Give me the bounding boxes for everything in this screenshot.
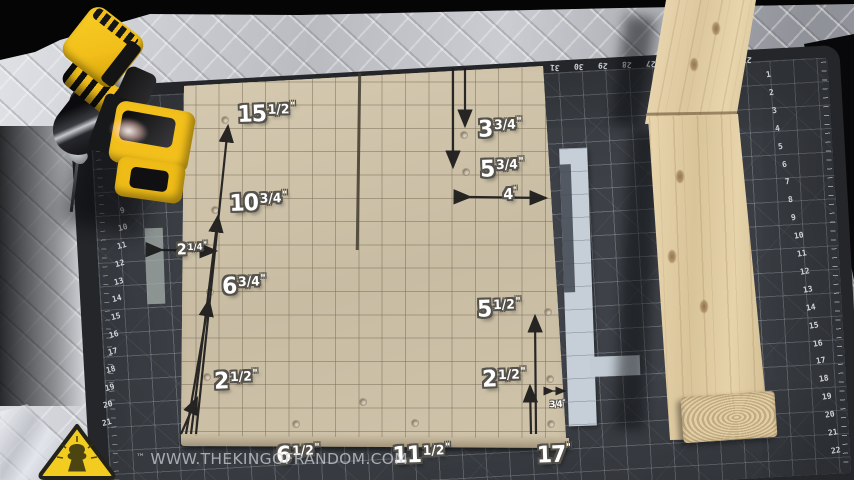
ruler-number: 8 xyxy=(787,195,793,205)
measurement-label-5-1-2: 51/2" xyxy=(477,297,521,321)
ruler-number: 10 xyxy=(793,230,804,241)
ruler-number: 11 xyxy=(796,248,807,259)
ruler-number: 15 xyxy=(110,311,122,322)
inch-mark: " xyxy=(520,366,524,377)
measurement-label-3-3-4: 33/4" xyxy=(478,117,522,141)
inch-mark: " xyxy=(252,368,256,379)
ruler-number: 7 xyxy=(784,177,790,187)
ruler-number: 15 xyxy=(809,320,820,331)
drill-hole-mark xyxy=(463,169,469,175)
measurement-label-10-3-4: 103/4" xyxy=(229,191,287,216)
drill-hole-mark xyxy=(548,421,554,427)
drill-hole-mark xyxy=(461,132,467,138)
measurement-fraction: 1/2 xyxy=(268,102,290,118)
inch-mark: " xyxy=(445,442,449,453)
video-frame: 89101112131415161718192021 1234567891011… xyxy=(0,0,854,480)
inch-mark: " xyxy=(513,186,516,194)
ruler-number: 16 xyxy=(812,338,823,349)
wood-knot xyxy=(712,22,720,35)
wood-knot xyxy=(700,300,708,313)
inch-mark: " xyxy=(203,240,206,248)
drill-hole-mark xyxy=(545,309,551,315)
measurement-value: 15 xyxy=(237,101,266,128)
measurement-fraction: 3/4 xyxy=(496,157,518,173)
measurement-value: 3/4 xyxy=(549,400,562,410)
measurement-value: 5 xyxy=(480,156,495,182)
measurement-value: 5 xyxy=(477,296,492,322)
measurement-label-6-3-4: 63/4" xyxy=(222,274,266,298)
measurement-value: 2 xyxy=(214,368,229,394)
wood-knot xyxy=(668,250,676,263)
ruler-number: 12 xyxy=(799,266,810,277)
inch-mark: " xyxy=(516,116,520,127)
ruler-number: 14 xyxy=(806,302,817,313)
measurement-label-5-3-4: 53/4" xyxy=(480,157,524,181)
ruler-number: 9 xyxy=(790,213,796,223)
drill-hole-mark xyxy=(412,420,418,426)
measurement-value: 6 xyxy=(222,273,237,299)
ruler-number: 19 xyxy=(821,391,832,402)
ruler-number: 22 xyxy=(830,445,841,456)
measurement-label-2-1-4: 21/4" xyxy=(177,240,207,257)
measurement-label-2-1-2-left: 21/2" xyxy=(214,369,258,393)
measurement-value: 2 xyxy=(482,366,497,392)
measurement-label-17-bottom: 17" xyxy=(536,443,570,467)
measurement-value: 3 xyxy=(478,116,493,142)
measurement-fraction: 1/2 xyxy=(493,297,515,313)
drill-hole-mark xyxy=(293,421,299,427)
measurement-fraction: 1/2 xyxy=(498,367,520,383)
measurement-label-2-1-2-right: 21/2" xyxy=(482,367,526,391)
watermark-url: WWW.THEKINGOFRANDOM.COM xyxy=(150,450,408,468)
inch-mark: " xyxy=(282,190,286,201)
measurement-fraction: 3/4 xyxy=(238,274,260,290)
inch-mark: " xyxy=(562,399,564,406)
ruler-number: 16 xyxy=(108,329,120,340)
cordless-drill xyxy=(20,0,230,235)
wood-knot xyxy=(690,58,698,71)
ruler-number: 29 xyxy=(598,61,608,71)
ruler-number: 30 xyxy=(574,62,584,72)
trademark-symbol: ™ xyxy=(136,453,145,463)
drill-hole-mark xyxy=(360,399,366,405)
ruler-number: 19 xyxy=(104,382,116,393)
measurement-label-3-4: 3/4" xyxy=(549,394,565,411)
watermark: ™WWW.THEKINGOFRANDOM.COM xyxy=(136,450,408,468)
light-flare xyxy=(107,115,151,148)
inch-mark: " xyxy=(518,156,522,167)
ruler-number: 6 xyxy=(781,159,787,169)
ruler-number: 21 xyxy=(827,427,838,438)
wood-knot xyxy=(676,170,684,183)
measurement-label-4: 4" xyxy=(503,186,516,202)
inch-mark: " xyxy=(290,101,294,112)
drill-hole-mark xyxy=(547,376,553,382)
measurement-value: 17 xyxy=(536,442,565,469)
ruler-number: 13 xyxy=(802,284,813,295)
ruler-number: 20 xyxy=(824,409,835,420)
measurement-fraction: 1/2 xyxy=(423,443,445,459)
measurement-value: 10 xyxy=(229,190,258,217)
inch-mark: " xyxy=(515,296,519,307)
inch-mark: " xyxy=(260,273,264,284)
drill-hole-mark xyxy=(204,374,210,380)
measurement-fraction: 3/4 xyxy=(260,191,282,207)
inch-mark: " xyxy=(566,442,570,453)
measurement-label-15-1-2: 151/2" xyxy=(237,102,295,127)
lumber-end-block xyxy=(681,391,778,443)
drill-hole-mark xyxy=(207,289,213,295)
channel-logo xyxy=(36,422,118,480)
ruler-number: 31 xyxy=(550,63,560,73)
measurement-fraction: 3/4 xyxy=(494,117,516,133)
drill-battery-label xyxy=(129,166,170,192)
ruler-number: 13 xyxy=(113,275,125,286)
mat-light-patch xyxy=(145,228,166,305)
mdf-board-edge xyxy=(181,436,569,448)
measurement-fraction: 1/2 xyxy=(230,369,252,385)
measurement-fraction: 1/4 xyxy=(187,243,202,254)
measurement-value: 4 xyxy=(503,185,513,203)
measurement-value: 2 xyxy=(176,240,186,258)
